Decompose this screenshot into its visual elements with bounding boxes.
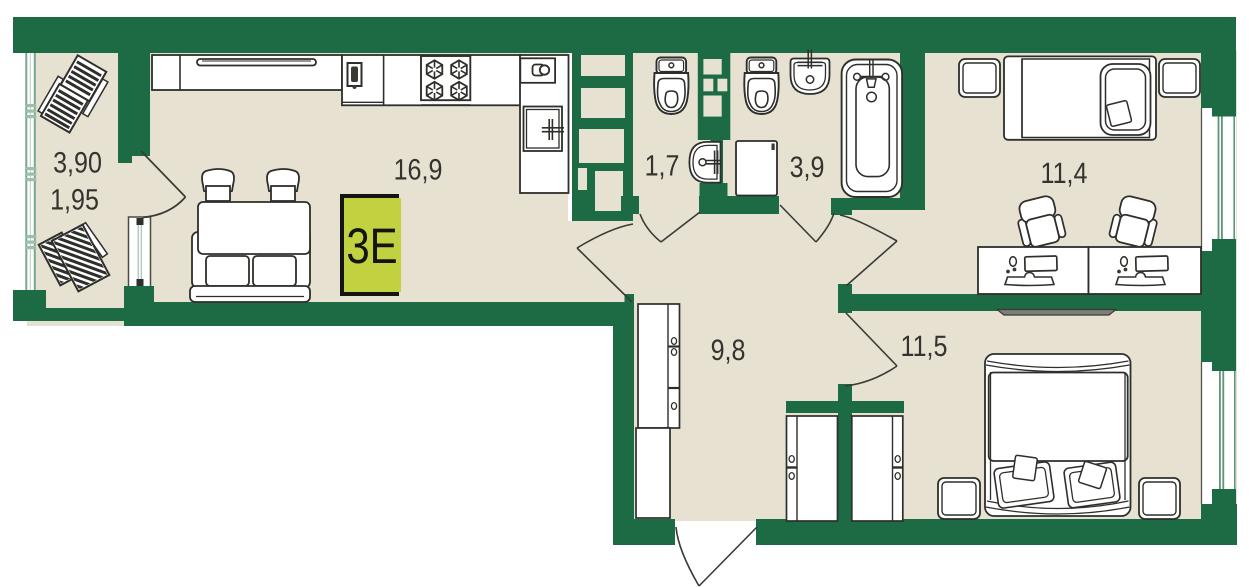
svg-text:1,7: 1,7	[645, 150, 680, 183]
svg-text:3,9: 3,9	[790, 151, 825, 184]
svg-text:16,9: 16,9	[394, 154, 443, 187]
svg-text:11,5: 11,5	[901, 330, 948, 363]
svg-text:3Е: 3Е	[346, 218, 397, 274]
svg-text:1,95: 1,95	[50, 184, 99, 217]
svg-text:11,4: 11,4	[1041, 157, 1088, 190]
svg-text:3,90: 3,90	[53, 147, 102, 180]
svg-text:9,8: 9,8	[711, 334, 746, 367]
